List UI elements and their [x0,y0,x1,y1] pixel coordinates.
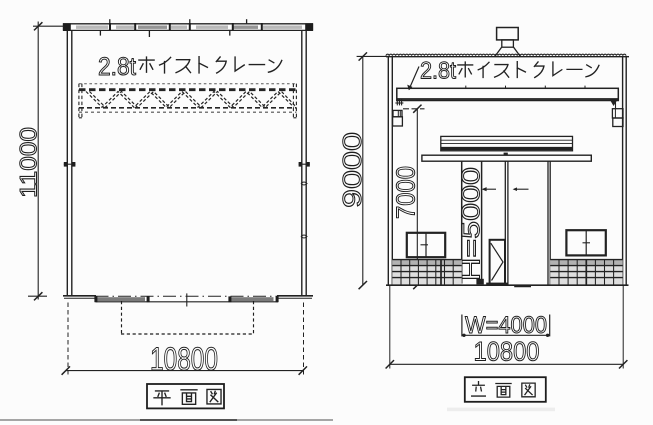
svg-text:9000: 9000 [337,132,367,208]
svg-text:10800: 10800 [150,341,218,377]
svg-text:11000: 11000 [16,127,43,198]
svg-text:H=5000: H=5000 [458,167,486,281]
svg-text:2.8t: 2.8t [98,53,136,81]
svg-text:10800: 10800 [474,337,540,367]
svg-text:7000: 7000 [391,166,421,219]
svg-text:W=4000: W=4000 [465,312,547,339]
svg-text:2.8t: 2.8t [420,58,456,85]
